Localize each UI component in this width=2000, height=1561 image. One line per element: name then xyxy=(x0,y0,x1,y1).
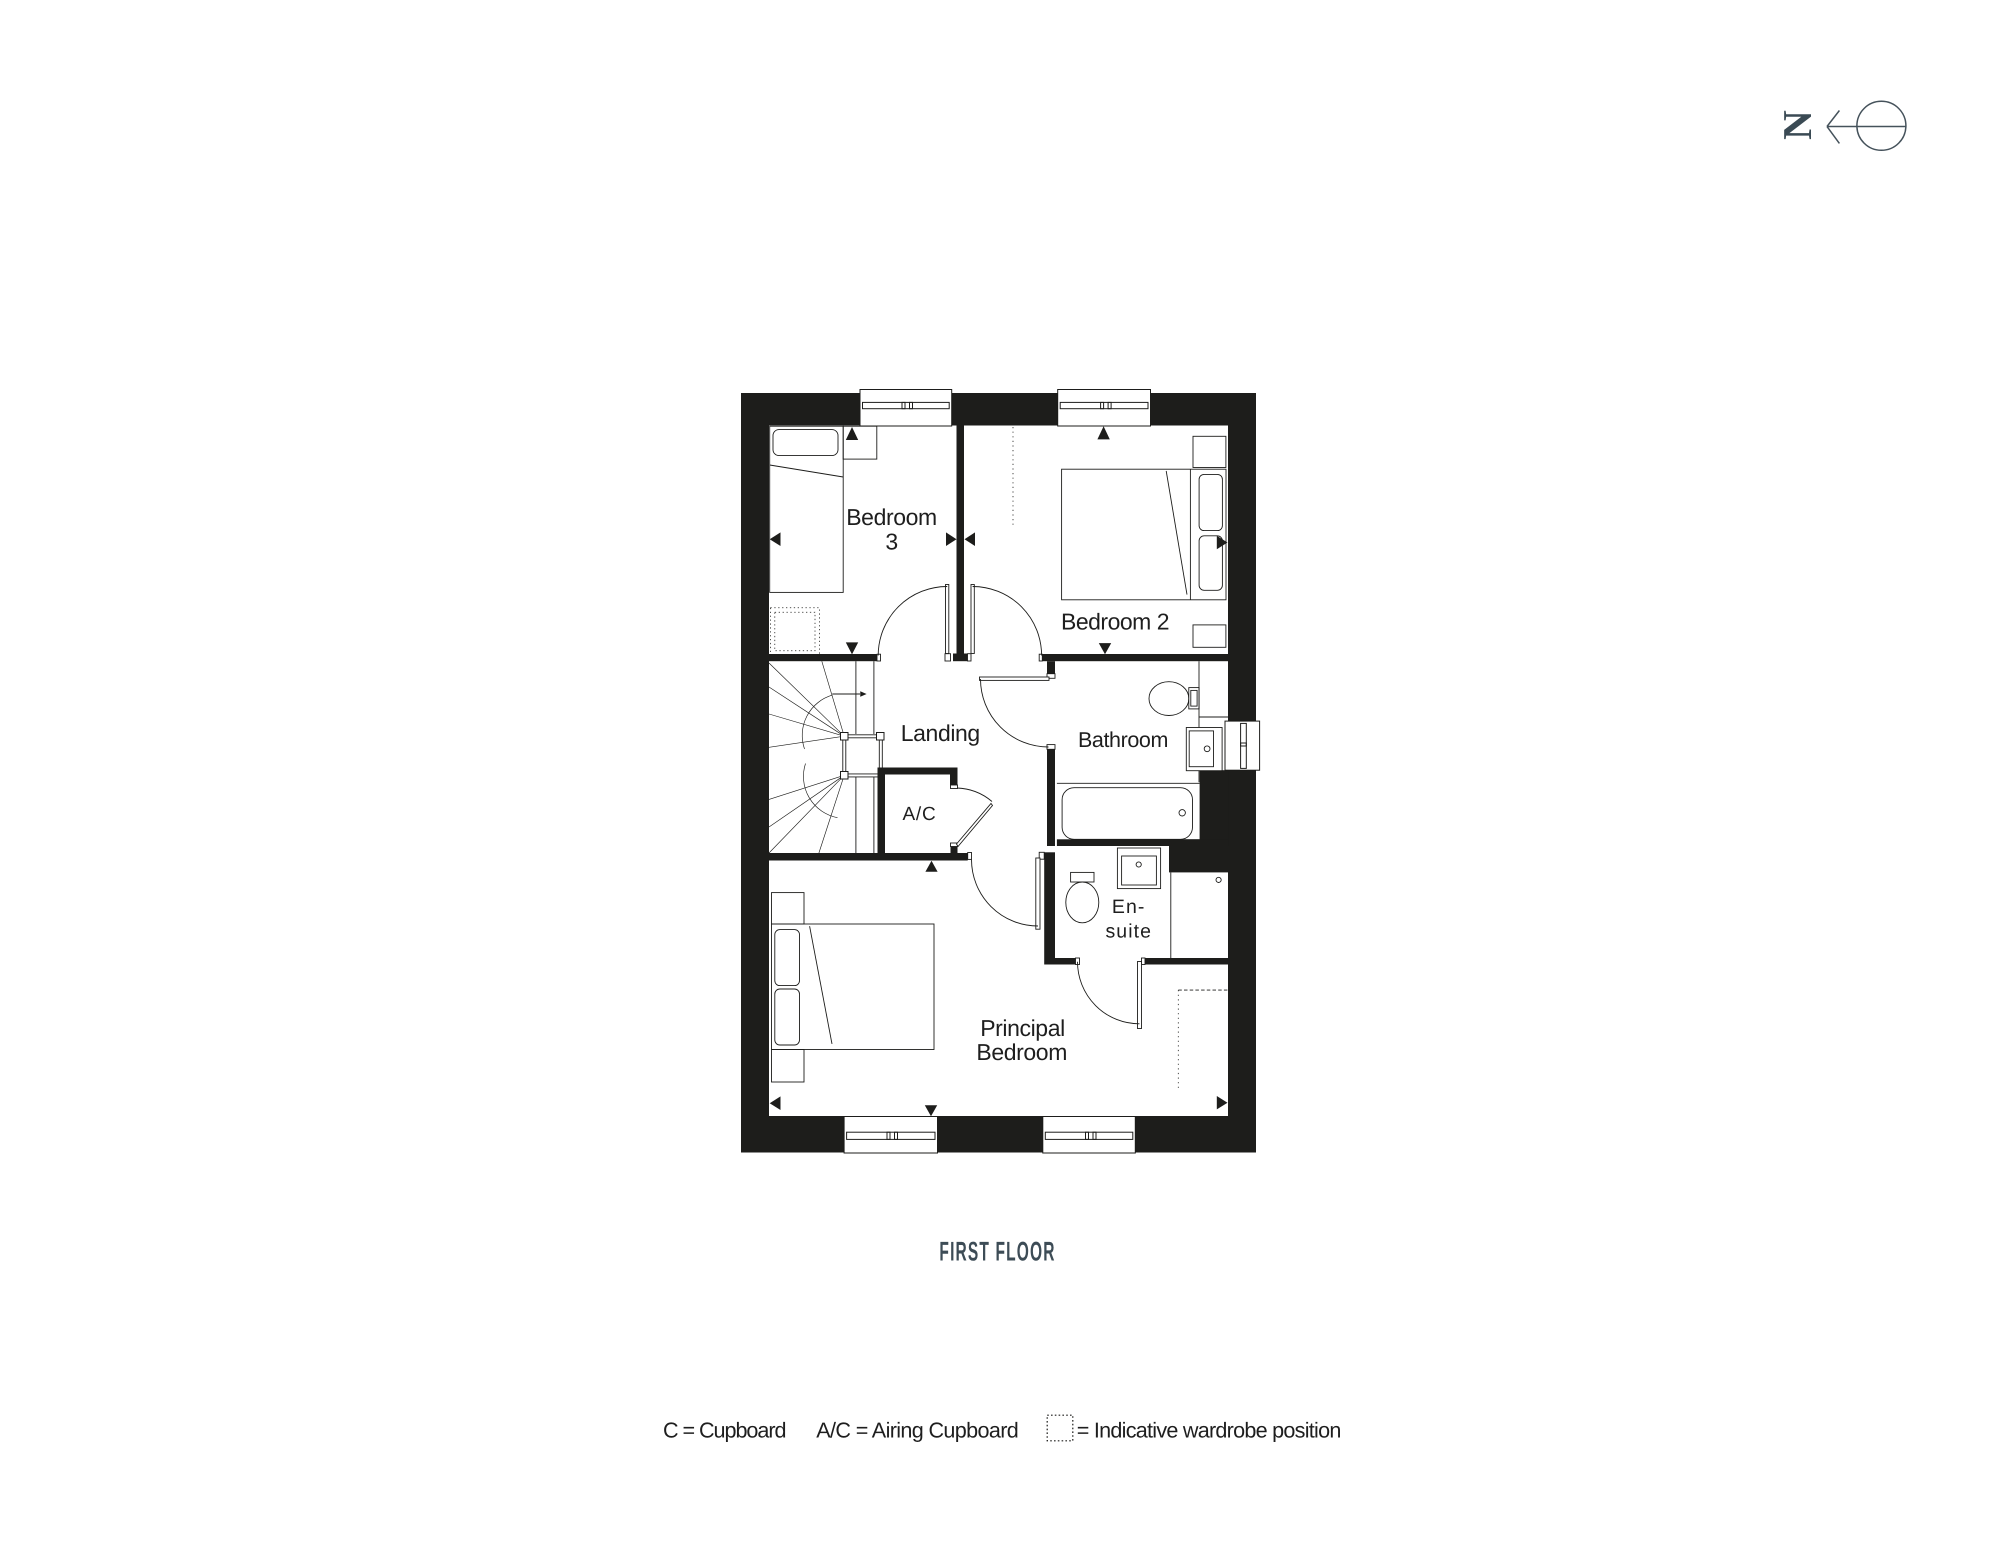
svg-text:Bedroom: Bedroom xyxy=(976,1039,1067,1065)
svg-text:= Indicative wardrobe position: = Indicative wardrobe position xyxy=(1077,1417,1341,1442)
svg-text:Landing: Landing xyxy=(901,720,980,746)
svg-text:C = Cupboard: C = Cupboard xyxy=(663,1417,785,1442)
svg-text:A/C: A/C xyxy=(902,804,936,825)
svg-text:Bedroom 2: Bedroom 2 xyxy=(1061,609,1169,635)
svg-text:En-: En- xyxy=(1112,896,1146,918)
svg-text:FIRST FLOOR: FIRST FLOOR xyxy=(939,1237,1055,1267)
svg-text:Principal: Principal xyxy=(980,1015,1065,1041)
svg-text:N: N xyxy=(1774,110,1820,140)
svg-text:suite: suite xyxy=(1105,921,1152,943)
svg-text:Bathroom: Bathroom xyxy=(1078,728,1168,752)
svg-text:3: 3 xyxy=(885,529,897,555)
svg-text:Bedroom: Bedroom xyxy=(846,504,937,530)
svg-text:A/C = Airing Cupboard: A/C = Airing Cupboard xyxy=(816,1417,1018,1442)
